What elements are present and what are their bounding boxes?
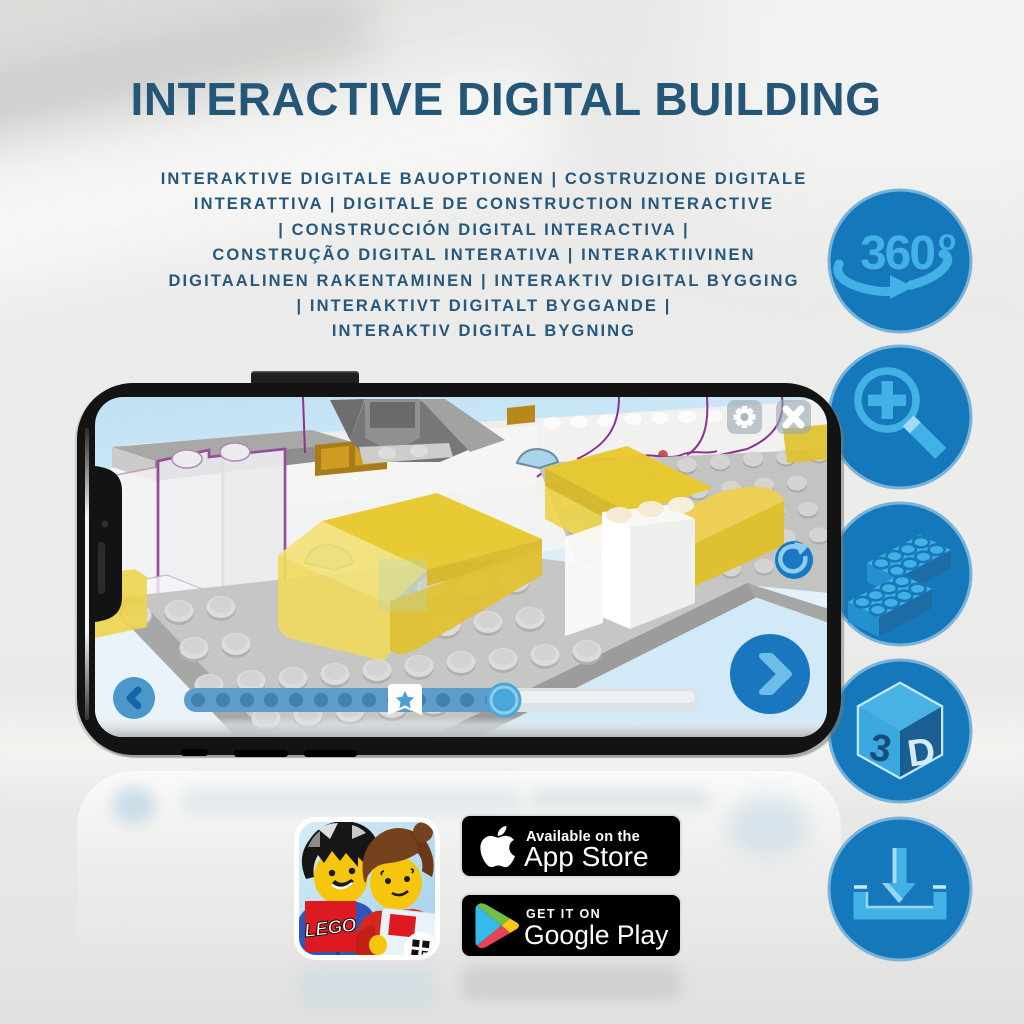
svg-text:360: 360: [860, 227, 934, 280]
svg-text:Google Play: Google Play: [524, 920, 669, 950]
svg-text:GET IT ON: GET IT ON: [526, 907, 601, 921]
svg-text:App Store: App Store: [524, 841, 649, 872]
svg-text:D: D: [905, 730, 938, 775]
